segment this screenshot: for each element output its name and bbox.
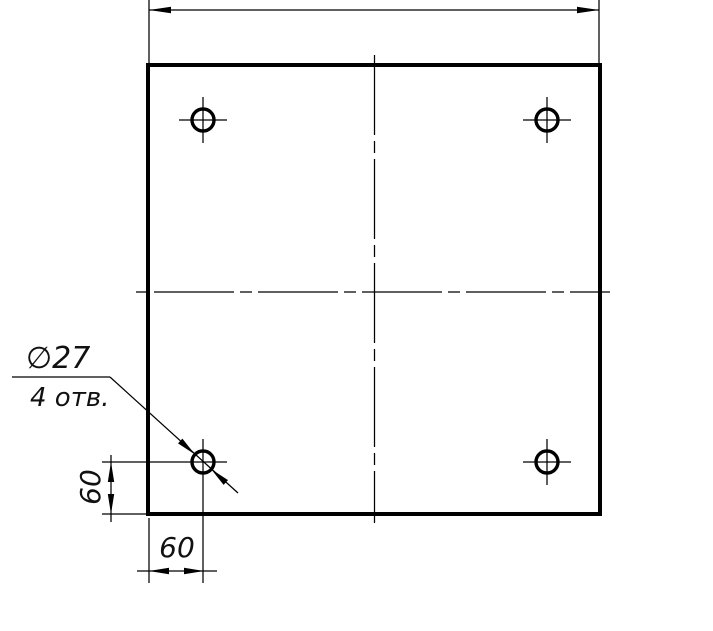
diameter-annotation: ∅27 4 отв. (12, 341, 238, 493)
bottom-dimension: 60 (137, 518, 217, 583)
left-dimension: 60 (74, 455, 148, 522)
left-dimension-value: 60 (74, 469, 107, 505)
top-dimension-arrow-right (577, 7, 599, 13)
top-dimension (149, 0, 599, 63)
top-dimension-arrow-left (149, 7, 171, 13)
bottom-dimension-arrow-left (149, 568, 169, 574)
hole-bottom-right (523, 439, 571, 485)
hole-top-right (523, 97, 571, 143)
holes-count-label: 4 отв. (30, 383, 109, 413)
left-dimension-arrow-up (108, 462, 114, 482)
plate-drawing: 60 60 ∅27 4 отв. (0, 0, 713, 631)
technical-drawing-canvas: 60 60 ∅27 4 отв. (0, 0, 713, 631)
bottom-dimension-value: 60 (159, 531, 195, 564)
bottom-dimension-arrow-right (184, 568, 204, 574)
diameter-arrow-upper (178, 439, 195, 455)
diameter-arrow-lower (211, 469, 228, 485)
hole-top-left (179, 97, 227, 143)
diameter-label: ∅27 (26, 341, 90, 376)
left-dimension-arrow-down (108, 494, 114, 514)
